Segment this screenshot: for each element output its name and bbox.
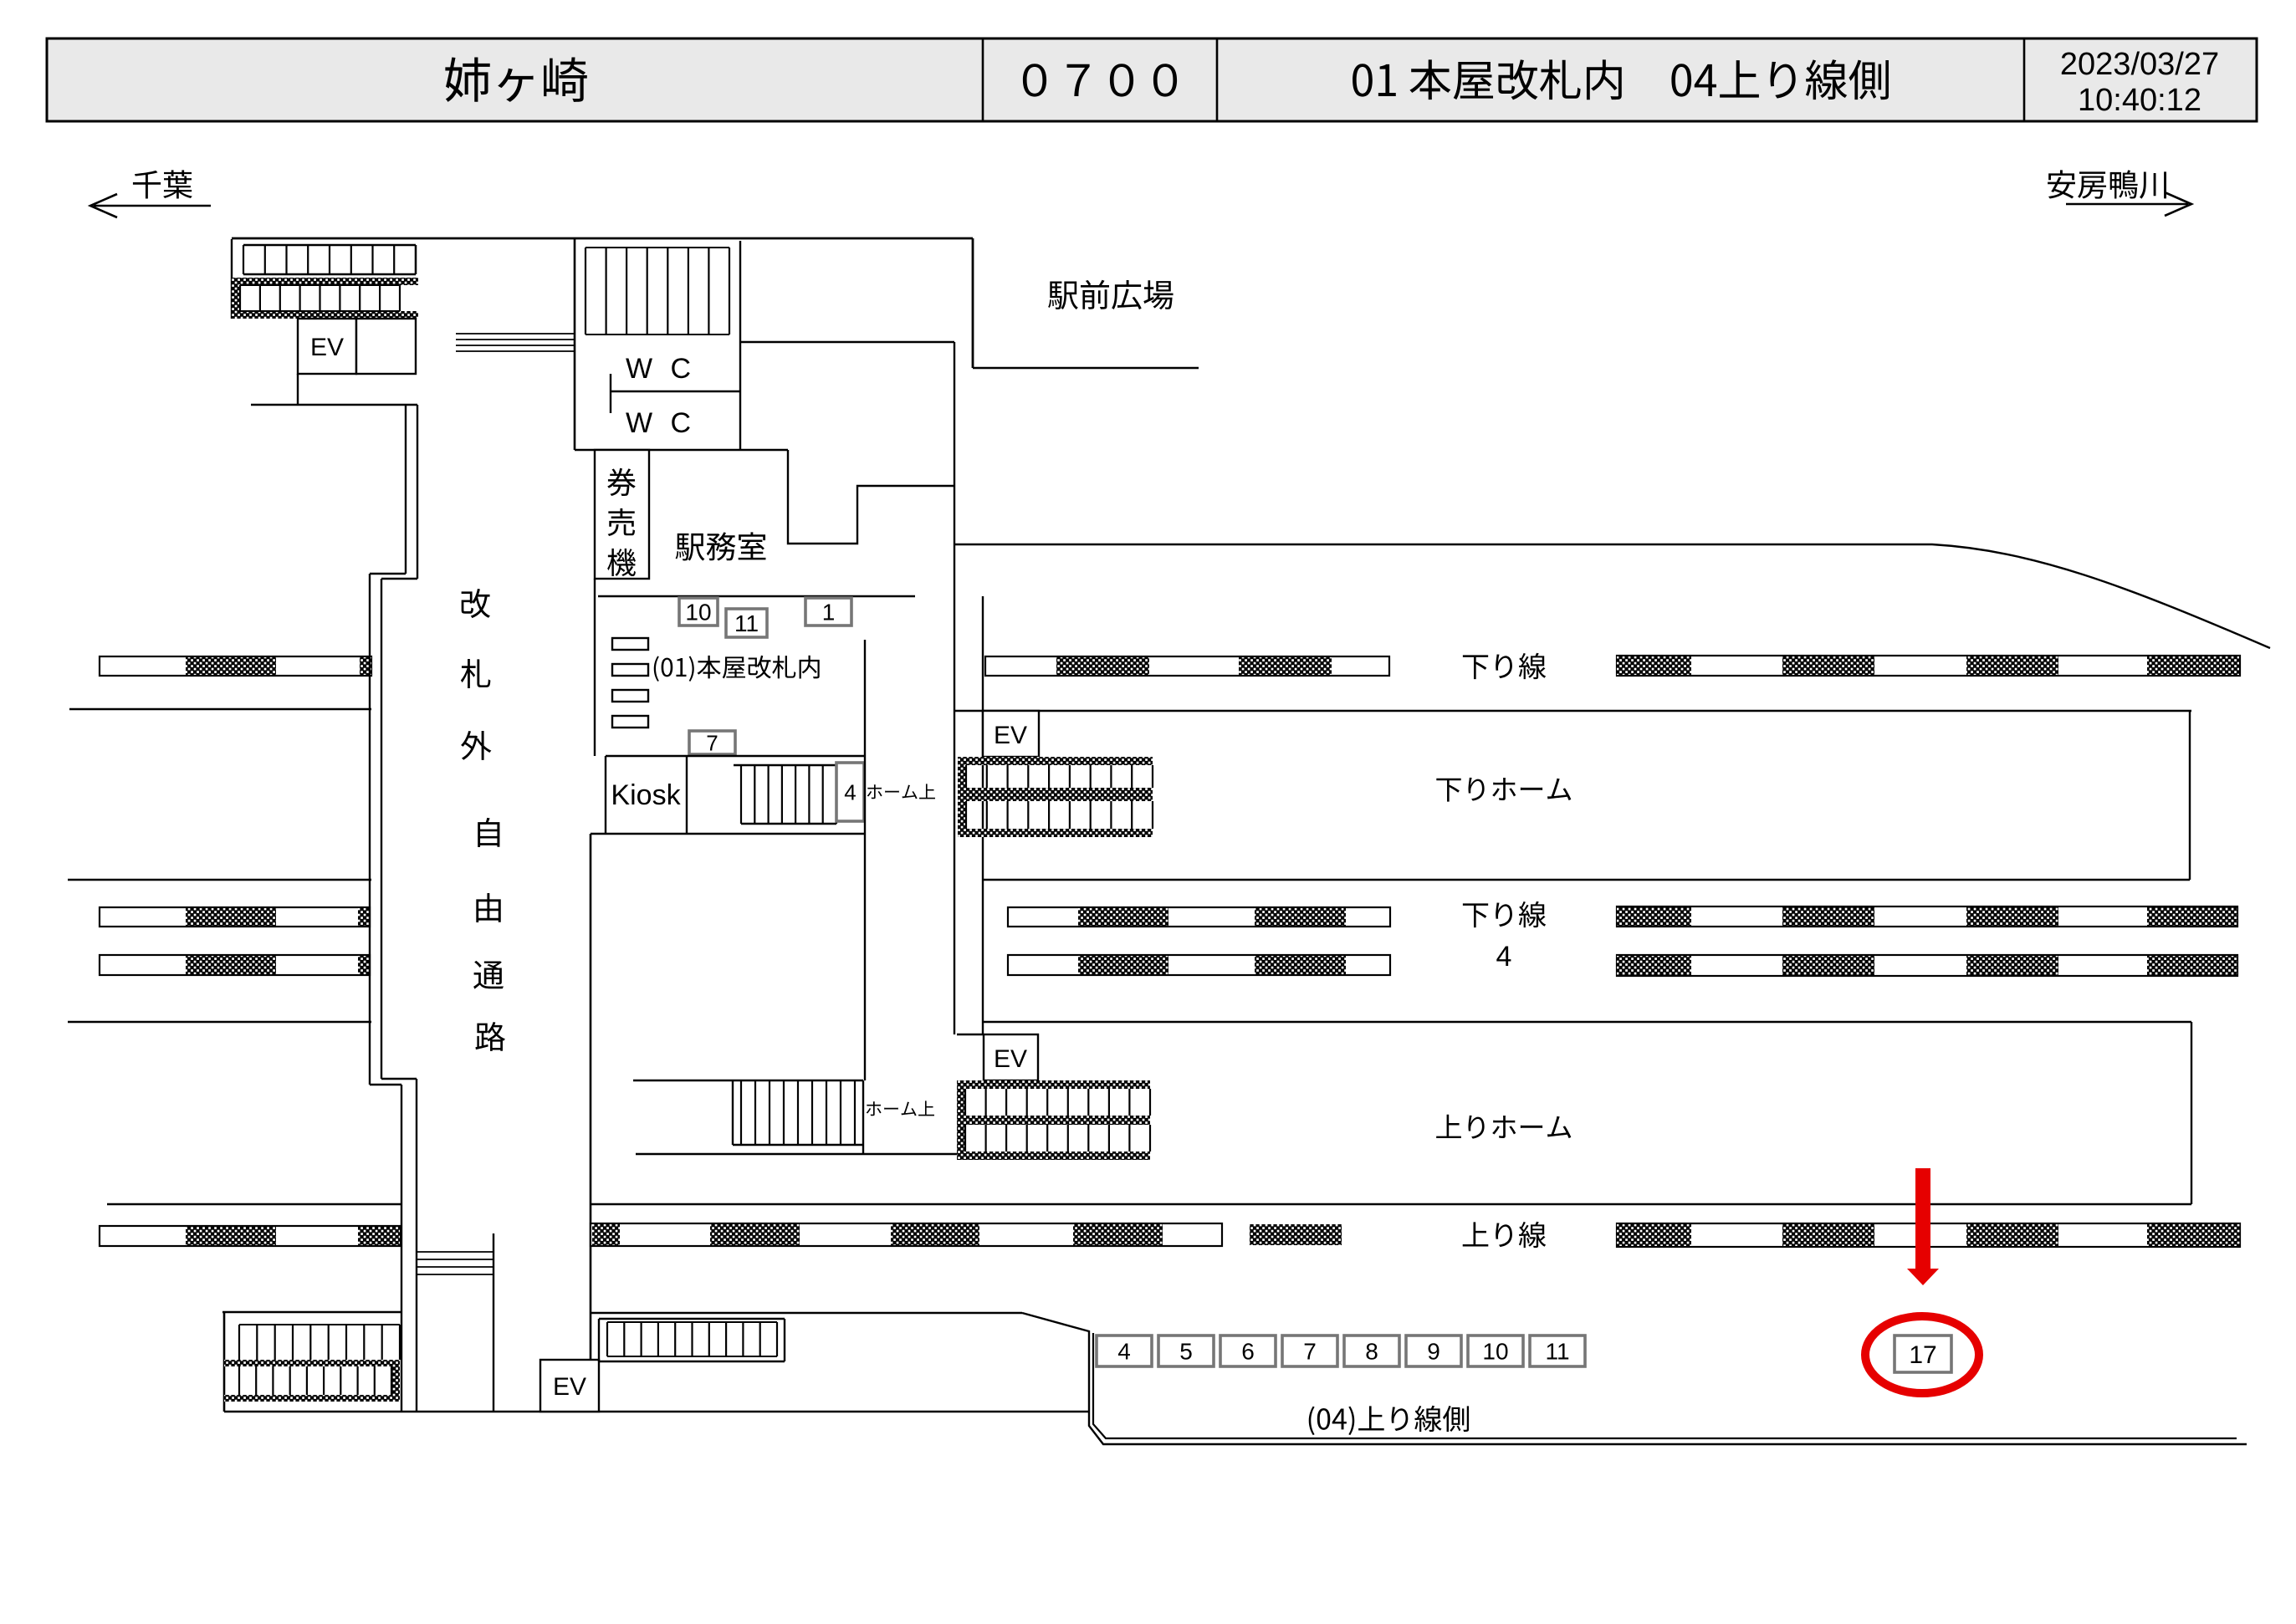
- svg-text:9: 9: [1427, 1339, 1440, 1365]
- svg-text:10: 10: [1482, 1339, 1508, 1365]
- svg-text:7: 7: [706, 730, 718, 755]
- svg-text:5: 5: [1179, 1339, 1193, 1365]
- svg-text:4: 4: [1496, 941, 1512, 973]
- svg-text:EV: EV: [310, 334, 344, 361]
- svg-text:7: 7: [1303, 1339, 1317, 1365]
- svg-text:W C: W C: [626, 353, 696, 385]
- svg-text:W C: W C: [626, 407, 696, 439]
- svg-text:11: 11: [734, 610, 759, 636]
- svg-text:10: 10: [685, 600, 711, 626]
- svg-text:8: 8: [1365, 1339, 1378, 1365]
- svg-text:2023/03/27: 2023/03/27: [2060, 47, 2219, 82]
- svg-text:EV: EV: [553, 1373, 586, 1401]
- svg-text:EV: EV: [994, 722, 1027, 749]
- svg-text:1: 1: [822, 600, 836, 626]
- svg-text:10:40:12: 10:40:12: [2078, 83, 2201, 118]
- svg-text:4: 4: [1117, 1339, 1131, 1365]
- svg-text:Kiosk: Kiosk: [611, 779, 681, 811]
- svg-text:6: 6: [1241, 1339, 1255, 1365]
- svg-text:11: 11: [1545, 1339, 1569, 1365]
- svg-text:17: 17: [1909, 1341, 1936, 1369]
- svg-text:EV: EV: [994, 1045, 1027, 1073]
- svg-text:4: 4: [844, 779, 856, 804]
